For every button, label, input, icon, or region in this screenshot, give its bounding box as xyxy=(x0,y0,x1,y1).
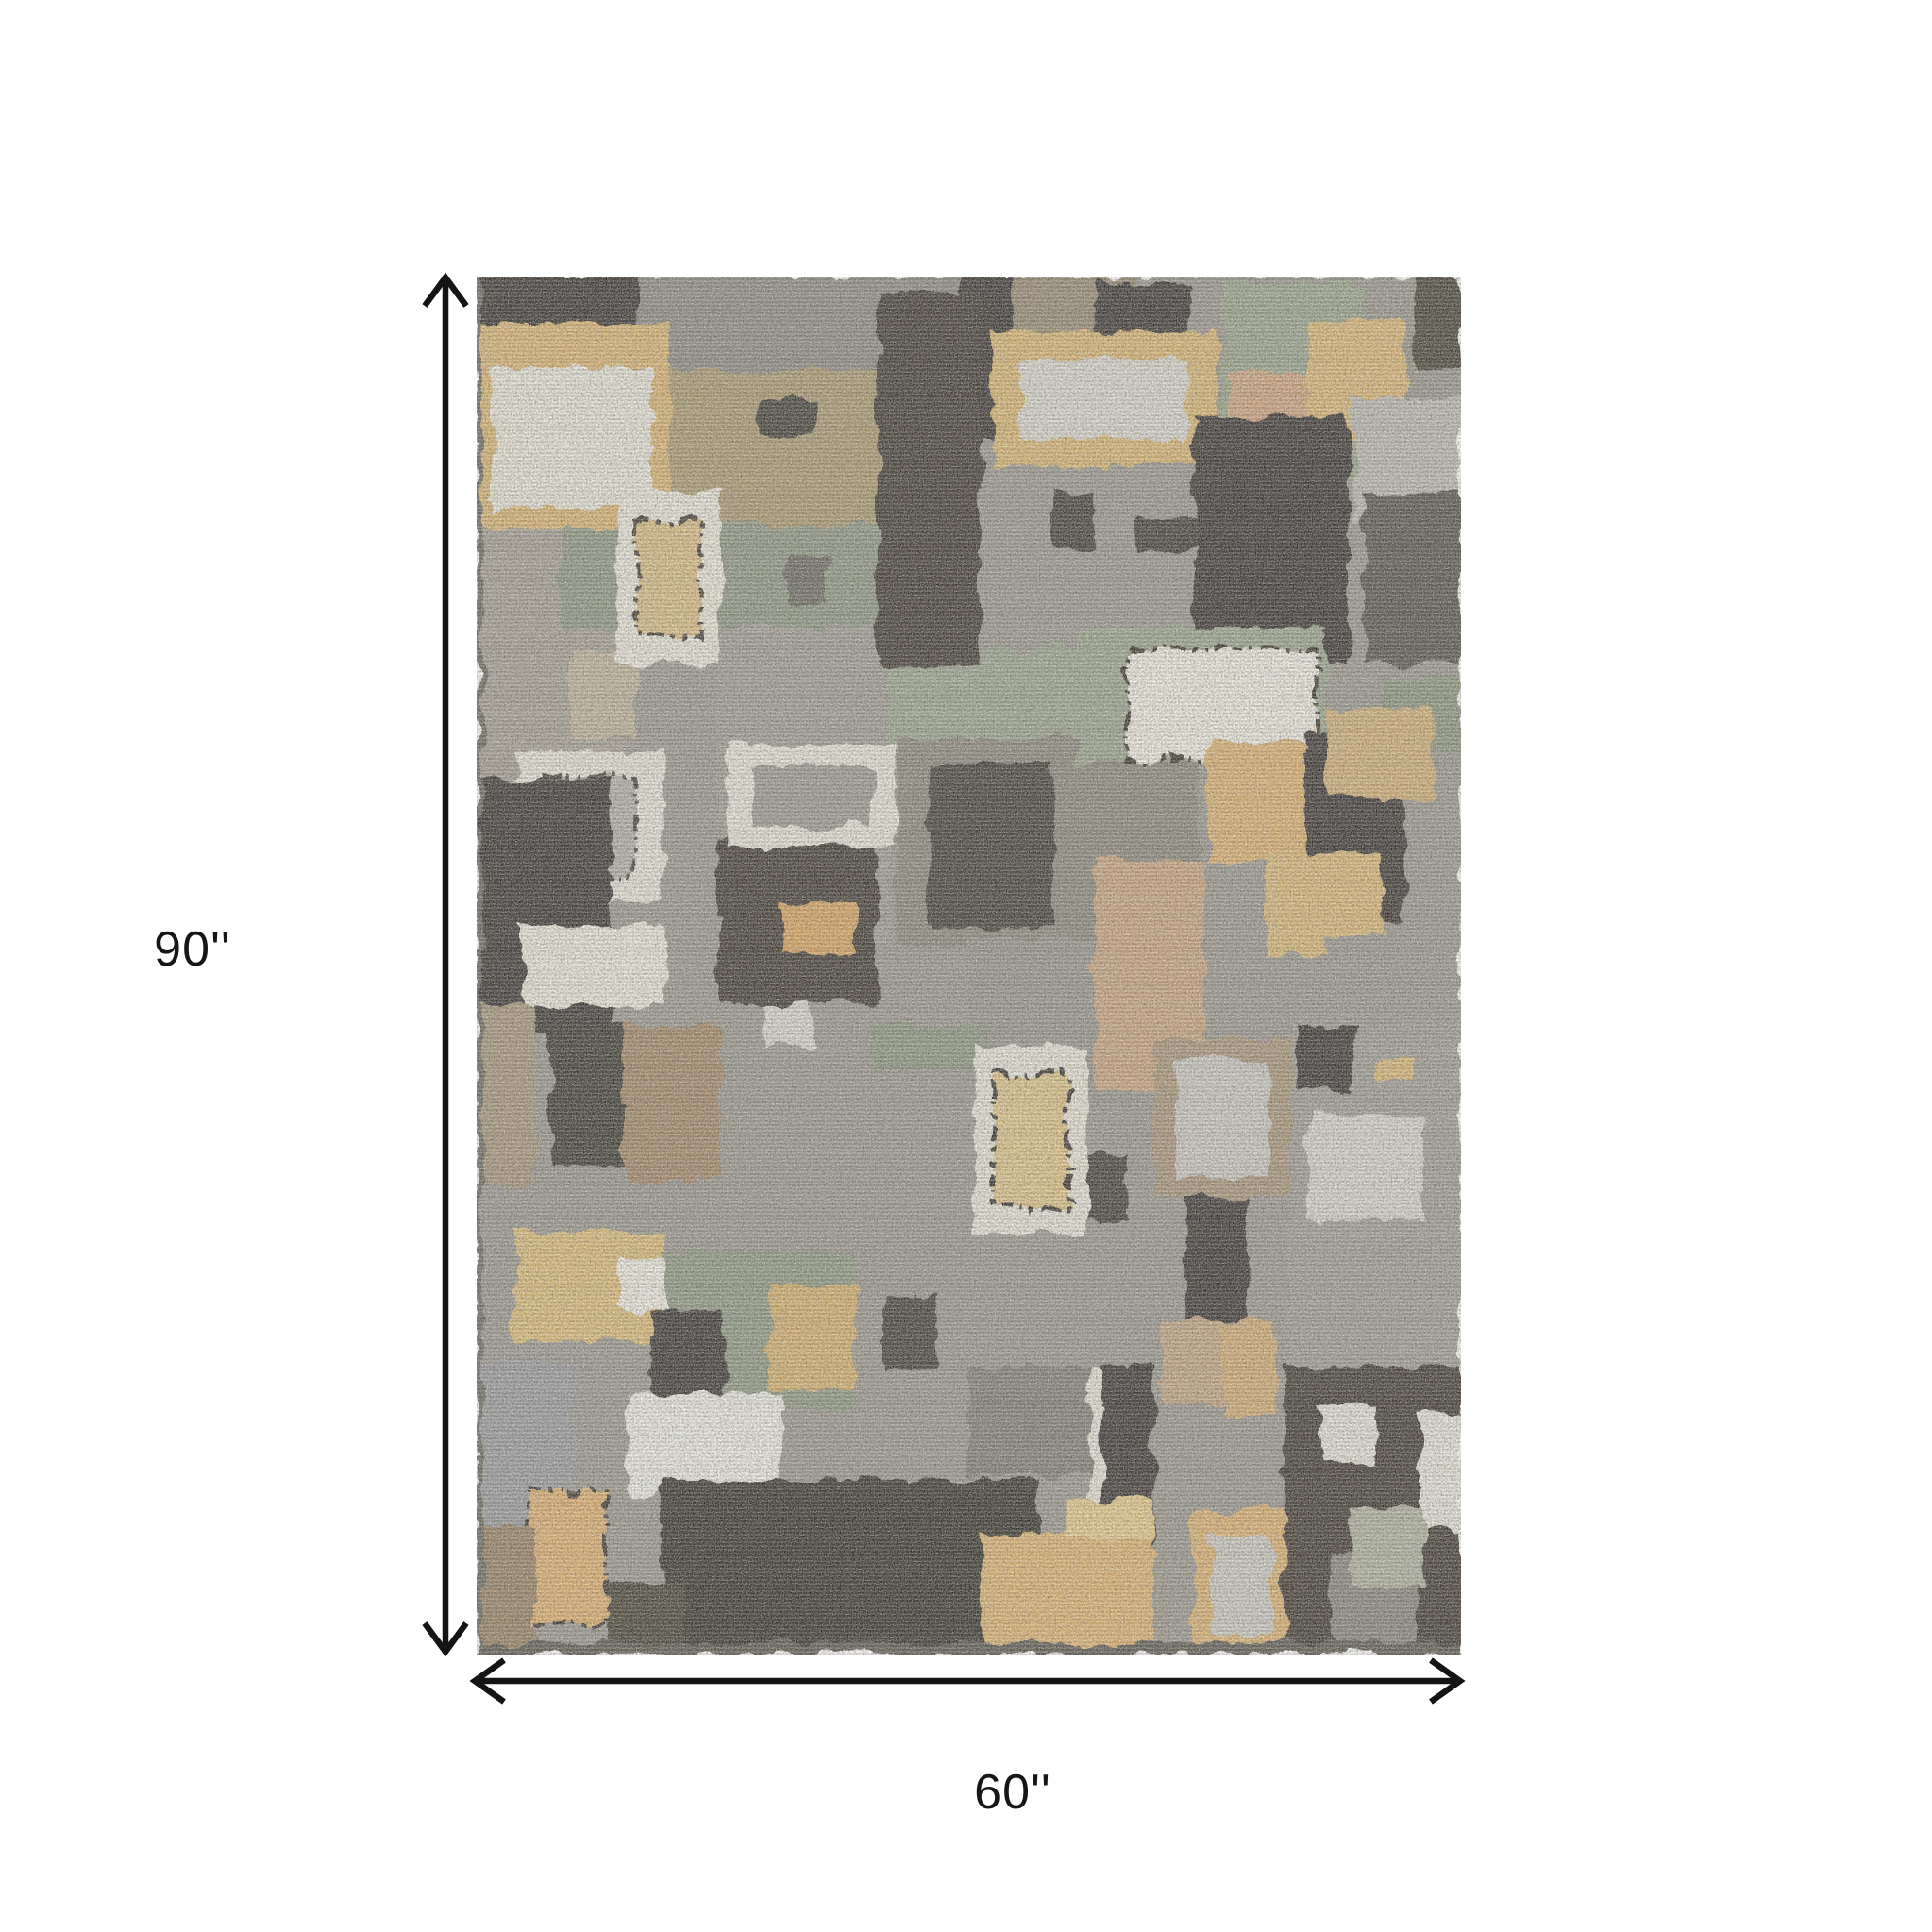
width-label: 60'' xyxy=(974,1764,1051,1821)
height-label: 90'' xyxy=(154,921,231,978)
height-arrow xyxy=(425,277,466,1652)
rug-image xyxy=(477,277,1461,1655)
product-dimension-diagram: 90'' 60'' xyxy=(0,0,1932,1932)
width-arrow xyxy=(475,1660,1460,1702)
rug-weave-lines xyxy=(477,277,1461,1655)
